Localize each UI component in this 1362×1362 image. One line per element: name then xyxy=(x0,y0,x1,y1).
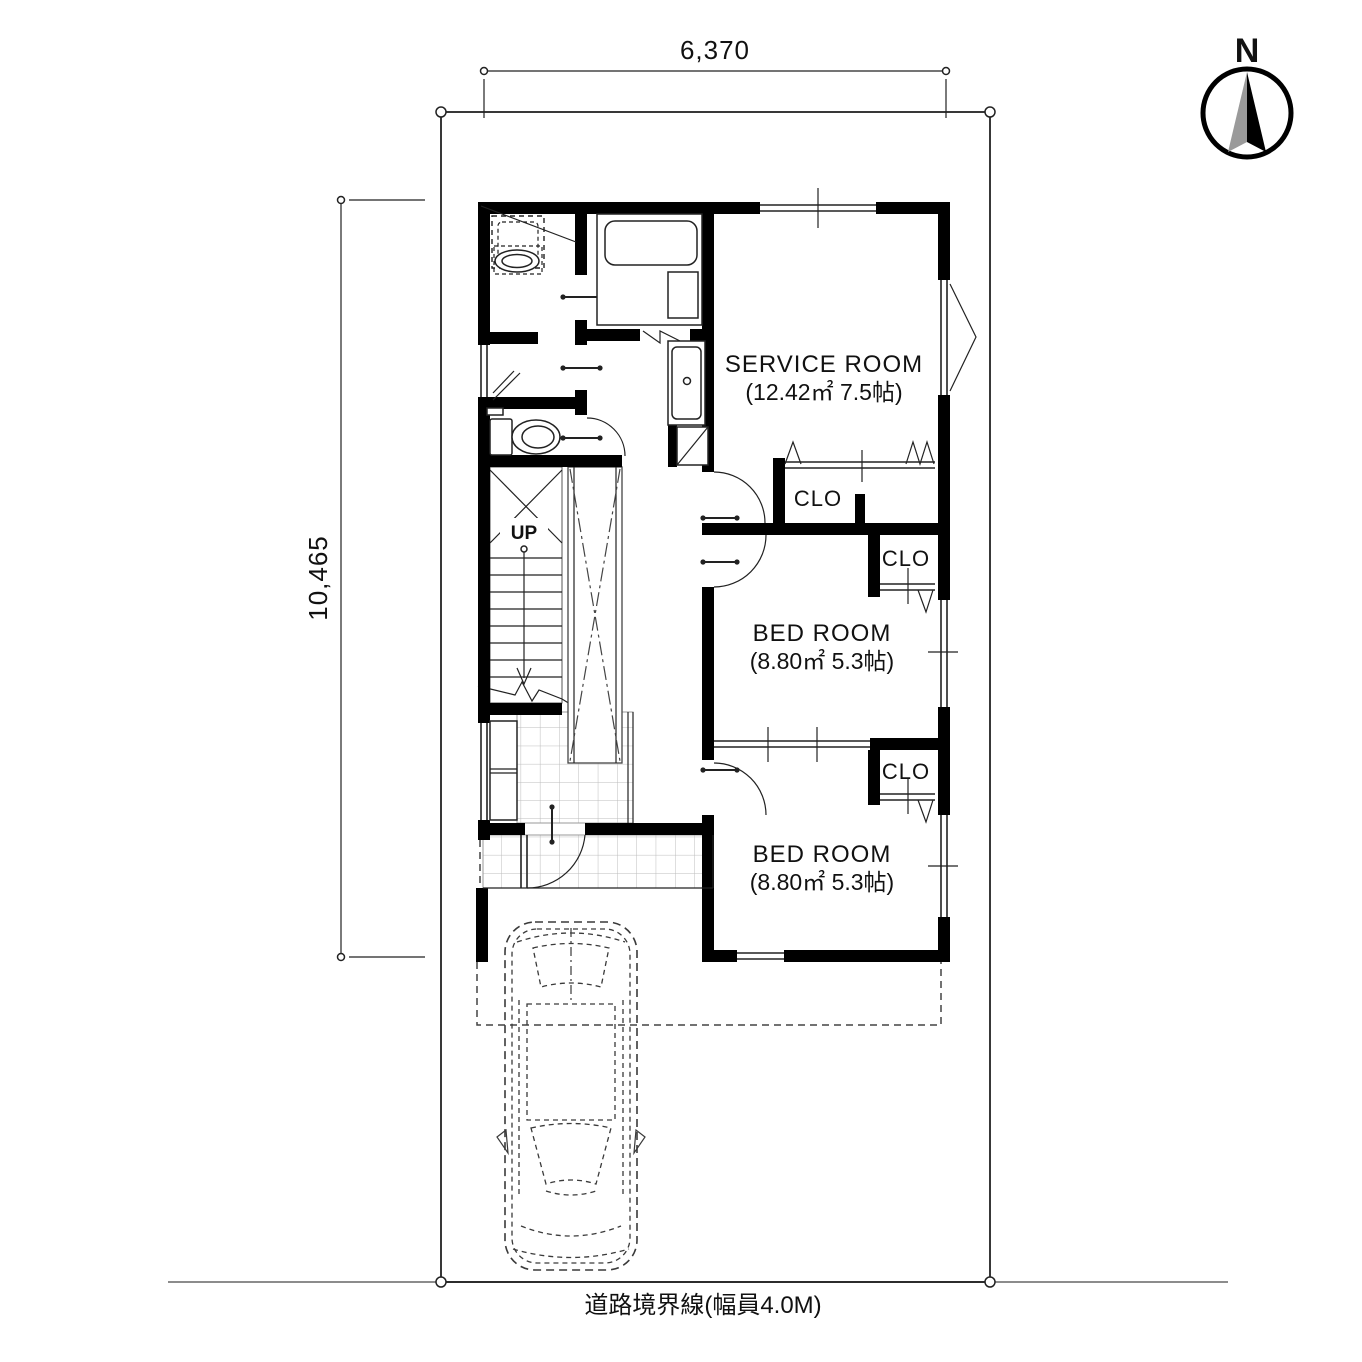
bathtub xyxy=(597,214,702,325)
service-room-size: (12.42㎡ 7.5帖) xyxy=(745,379,902,405)
road-boundary-label: 道路境界線(幅員4.0M) xyxy=(584,1292,821,1319)
service-room-name: SERVICE ROOM xyxy=(725,351,923,378)
bedroom2-name: BED ROOM xyxy=(753,841,892,868)
window-bedroom2-right xyxy=(928,815,958,917)
dimension-height-label: 10,465 xyxy=(303,535,333,621)
dimension-left: 10,465 xyxy=(303,197,425,961)
bedroom1-size: (8.80㎡ 5.3帖) xyxy=(750,648,894,674)
closet1-folding-doors xyxy=(785,442,935,482)
north-label: N xyxy=(1235,32,1260,70)
partition-bedrooms-sliding xyxy=(714,727,870,762)
closet2-label: CLO xyxy=(882,546,930,571)
linen-cabinet xyxy=(677,427,708,465)
floor-plan-canvas: 道路境界線(幅員4.0M) 6,370 10,465 N xyxy=(0,0,1362,1362)
shoe-cabinet xyxy=(490,721,517,820)
closet1-label: CLO xyxy=(794,486,842,511)
door-service-room xyxy=(714,472,765,523)
window-service-room-bay xyxy=(941,280,976,395)
toilet xyxy=(487,408,560,455)
floor-plan-page: 道路境界線(幅員4.0M) 6,370 10,465 N xyxy=(0,0,1362,1362)
stairs-up-label: UP xyxy=(511,523,538,544)
dimension-top: 6,370 xyxy=(481,35,950,118)
bedroom1-name: BED ROOM xyxy=(753,620,892,647)
north-arrow-icon: N xyxy=(1203,32,1291,157)
vanity-sink xyxy=(668,341,705,425)
porch-tiles xyxy=(480,835,713,888)
window-bedroom1-right xyxy=(928,600,958,707)
closet3-label: CLO xyxy=(882,759,930,784)
stair-void xyxy=(568,467,622,763)
footprint-overhang-dashed xyxy=(477,962,941,1025)
window-bedroom2-bottom xyxy=(737,953,784,959)
stairs: UP xyxy=(478,467,575,707)
window-entrance-left xyxy=(481,723,487,820)
closet2-folding-door xyxy=(880,568,935,612)
room-label-bedroom1: BED ROOM (8.80㎡ 5.3帖) xyxy=(750,620,894,674)
bedroom2-size: (8.80㎡ 5.3帖) xyxy=(750,869,894,895)
window-top-wall xyxy=(760,188,876,228)
room-label-service-room: SERVICE ROOM (12.42㎡ 7.5帖) xyxy=(725,351,923,405)
closet3-folding-door xyxy=(880,778,935,822)
washroom-sink xyxy=(494,246,542,274)
car xyxy=(497,922,645,1270)
room-label-bedroom2: BED ROOM (8.80㎡ 5.3帖) xyxy=(750,841,894,895)
window-left-toilet xyxy=(481,345,520,400)
dimension-width-label: 6,370 xyxy=(680,35,750,65)
